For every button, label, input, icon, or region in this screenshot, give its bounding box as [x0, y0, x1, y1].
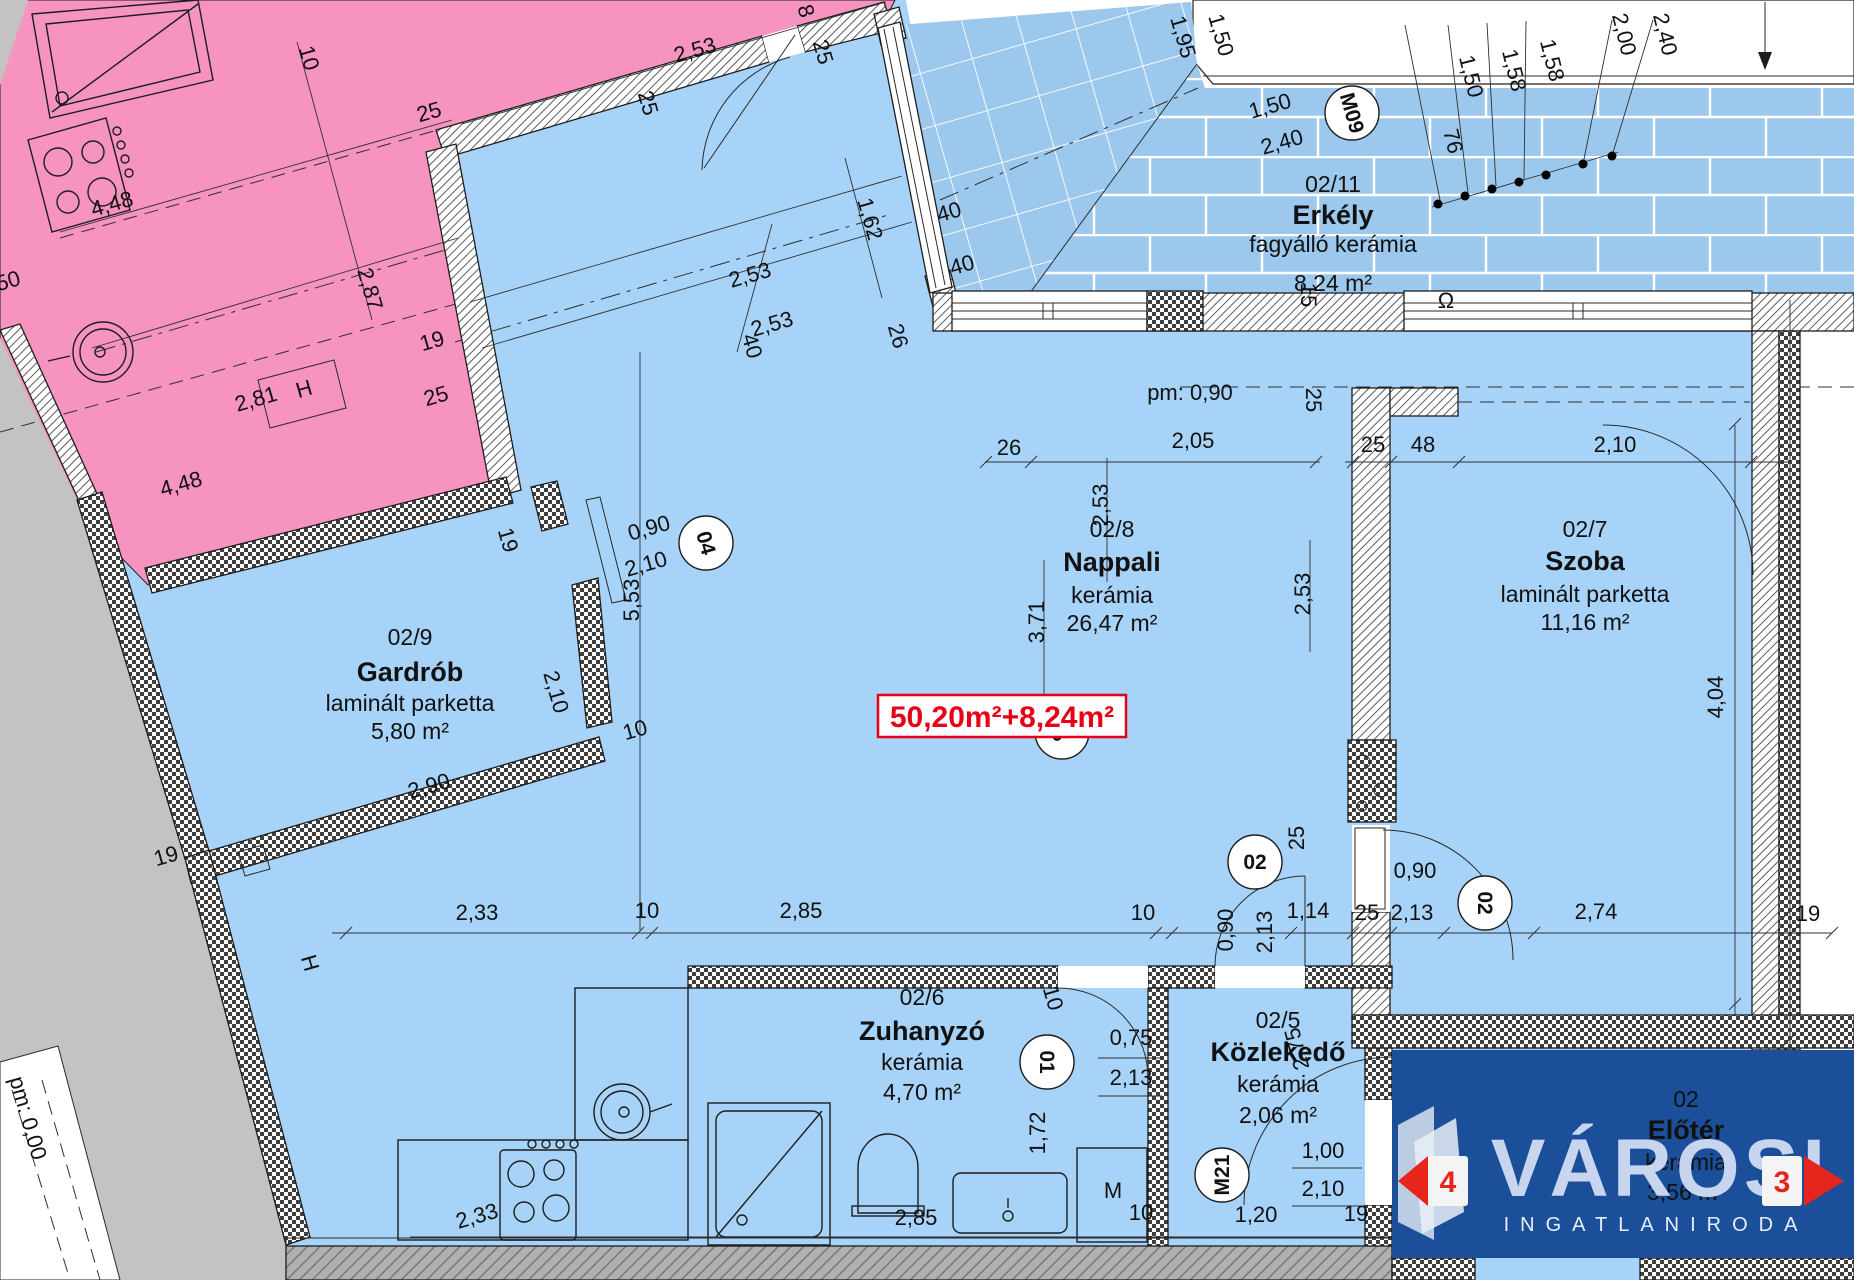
- dim-label: 5,53: [619, 579, 644, 622]
- room-name-zuhanyzó: Zuhanyzó: [859, 1016, 985, 1046]
- area-badge: 50,20m²+8,24m²: [878, 695, 1126, 737]
- room-name-gardrób: Gardrób: [357, 657, 464, 687]
- doorM21-gap: [1365, 1100, 1392, 1205]
- room-name-nappali: Nappali: [1063, 547, 1161, 577]
- dim-label: 2,85: [780, 898, 823, 923]
- wall-bath-top: [1148, 966, 1215, 988]
- dim-label: 0,90: [1213, 909, 1238, 952]
- room-name-erkély: Erkély: [1292, 200, 1373, 230]
- door-marker-02: 02: [1228, 835, 1282, 889]
- room-number: 02/6: [900, 984, 945, 1010]
- room-area: 26,47 m²: [1067, 610, 1158, 636]
- watermark-overlay: 02Előtérkerámia3,56 m² VÁROSI INGATLANIR…: [1392, 1050, 1854, 1258]
- dim-label: 2,13: [1110, 1065, 1153, 1090]
- room-finish: laminált parketta: [1501, 581, 1670, 607]
- shaft: [1348, 740, 1396, 822]
- dim-label: 3,71: [1024, 601, 1049, 644]
- dim-label: 1,20: [1235, 1202, 1278, 1227]
- dim-label: 2,13: [1252, 911, 1277, 954]
- wall-outer-right: [1752, 331, 1779, 1050]
- dim-label: 25: [1361, 432, 1385, 457]
- dim-label: 2,53: [1290, 573, 1315, 616]
- dim-label: 2,05: [1172, 428, 1215, 453]
- room-name-szoba: Szoba: [1545, 546, 1625, 576]
- dim-label: 1,00: [1302, 1138, 1345, 1163]
- room-finish: kerámia: [1071, 582, 1153, 608]
- wall-szoba-top-pier: [1390, 388, 1458, 416]
- dim-label: 0,90: [1394, 858, 1437, 883]
- dim-label: 26: [997, 435, 1021, 460]
- dim-label: 1,14: [1287, 898, 1330, 923]
- room-area: 2,06 m²: [1239, 1102, 1317, 1128]
- dim-label: 2,33: [456, 900, 499, 925]
- door-marker-01: 01: [1020, 1035, 1074, 1089]
- door-marker-label: 02: [1243, 851, 1266, 874]
- outside-right: [1800, 331, 1854, 1050]
- room-finish: fagyálló kerámia: [1249, 231, 1417, 257]
- door-marker-label: 01: [1035, 1050, 1058, 1074]
- door01-gap: [1058, 966, 1148, 988]
- room-number: 02/7: [1563, 516, 1608, 542]
- dim-label: 19: [1796, 901, 1820, 926]
- door-marker-02: 02: [1458, 876, 1512, 930]
- wall-below-entry: [1392, 1258, 1475, 1280]
- door-marker-04: 04: [679, 516, 733, 570]
- dim-label: pm: 0,90: [1147, 380, 1233, 405]
- wall-hall-entry: [1365, 1205, 1392, 1250]
- dim-label: M: [1104, 1178, 1122, 1203]
- dim-label: 25: [1301, 388, 1326, 412]
- door-marker-label: 02: [1473, 891, 1496, 914]
- dim-label: 1,72: [1025, 1112, 1050, 1155]
- door-marker-label: M21: [1211, 1154, 1234, 1195]
- room-name-közlekedő: Közlekedő: [1210, 1037, 1345, 1067]
- floor-plan-drawing: 10252,53825254,482,87192,8125504,48H2,53…: [0, 0, 1854, 1280]
- prev-count: 4: [1440, 1166, 1457, 1199]
- area-badge-text: 50,20m²+8,24m²: [890, 701, 1114, 734]
- room-finish: laminált parketta: [326, 690, 495, 716]
- dim-label: 2,85: [895, 1205, 938, 1230]
- vent-shaft: [1147, 291, 1203, 331]
- dim-label: 2,13: [1391, 900, 1434, 925]
- wall-entry-top: [1352, 1015, 1854, 1048]
- room-number: 02/9: [388, 624, 433, 650]
- room-number: 02/11: [1305, 171, 1361, 197]
- dim-label: 2,10: [1302, 1176, 1345, 1201]
- next-count: 3: [1774, 1166, 1791, 1199]
- room-finish: kerámia: [881, 1049, 963, 1075]
- dim-label: 19: [1344, 1201, 1368, 1226]
- door-marker-m09: M09: [1325, 86, 1379, 140]
- dim-label: 25: [1284, 826, 1309, 850]
- dim-label: 10: [1129, 1200, 1153, 1225]
- door02a-gap: [1215, 966, 1305, 988]
- dim-label: 25: [1355, 900, 1379, 925]
- dim-label: 2,10: [1594, 432, 1637, 457]
- room-finish: kerámia: [1237, 1071, 1319, 1097]
- dim-label: 0,75: [1110, 1025, 1153, 1050]
- room-number: 02: [1673, 1086, 1699, 1112]
- dim-label: 48: [1411, 432, 1435, 457]
- dim-label: 10: [1131, 900, 1155, 925]
- room-number: 02/5: [1256, 1007, 1301, 1033]
- wall-insulation-right: [1779, 331, 1800, 1050]
- room-area: 8,24 m²: [1294, 270, 1372, 296]
- dim-label: 10: [635, 898, 659, 923]
- wall-bath-top: [1305, 966, 1392, 988]
- room-area: 5,80 m²: [371, 718, 449, 744]
- wall-below-entry: [1640, 1258, 1854, 1280]
- room-number: 02/8: [1090, 516, 1135, 542]
- dim-label: 4,04: [1703, 676, 1728, 719]
- dim-label: Ω: [1438, 288, 1454, 313]
- door-marker-m21: M21: [1195, 1148, 1249, 1202]
- watermark-subtitle: INGATLANIRODA: [1504, 1214, 1809, 1236]
- room-area: 4,70 m²: [883, 1079, 961, 1105]
- dim-label: 2,74: [1575, 899, 1618, 924]
- door02b-gap: [1352, 825, 1390, 912]
- floor-plan-page: 10252,53825254,482,87192,8125504,48H2,53…: [0, 0, 1854, 1280]
- wall-bath-top: [688, 966, 1058, 988]
- room-area: 11,16 m²: [1540, 609, 1629, 635]
- wall-bottom-outer: [286, 1246, 1392, 1280]
